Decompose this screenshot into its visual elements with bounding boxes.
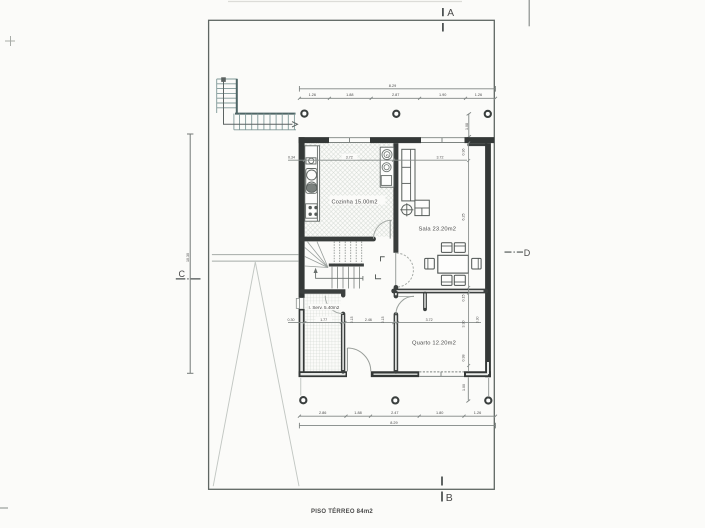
svg-text:1.08: 1.08 (465, 123, 469, 130)
svg-text:3.72: 3.72 (426, 318, 433, 322)
svg-text:1.00: 1.00 (462, 384, 466, 391)
svg-text:1.80: 1.80 (436, 411, 443, 415)
svg-text:1.88: 1.88 (354, 411, 361, 415)
svg-text:1.90: 1.90 (439, 93, 446, 97)
svg-text:2.47: 2.47 (391, 411, 398, 415)
svg-text:0.34: 0.34 (288, 156, 295, 160)
svg-text:3.72: 3.72 (346, 156, 353, 160)
svg-text:D: D (524, 248, 531, 258)
svg-text:Sala 23.20m2: Sala 23.20m2 (419, 227, 457, 233)
svg-text:8.29: 8.29 (389, 84, 396, 88)
svg-text:2.87: 2.87 (392, 93, 399, 97)
svg-text:0.15: 0.15 (350, 316, 354, 323)
svg-text:0.15: 0.15 (381, 316, 385, 323)
svg-text:3.30: 3.30 (462, 321, 466, 328)
svg-text:C: C (179, 269, 186, 279)
svg-text:1.26: 1.26 (474, 411, 481, 415)
svg-text:1.77: 1.77 (320, 318, 327, 322)
svg-text:I. Serv. 5.40m2: I. Serv. 5.40m2 (309, 305, 340, 310)
svg-text:2.46: 2.46 (365, 318, 372, 322)
svg-text:0.38: 0.38 (462, 355, 466, 362)
svg-text:0.15: 0.15 (462, 295, 466, 302)
svg-text:6.25: 6.25 (461, 214, 465, 221)
svg-text:Quarto 12.20m2: Quarto 12.20m2 (412, 340, 456, 346)
svg-text:A: A (447, 8, 454, 19)
svg-text:0.15: 0.15 (386, 154, 390, 161)
svg-text:0.30: 0.30 (288, 318, 295, 322)
svg-text:0.36: 0.36 (461, 149, 465, 156)
svg-text:1.26: 1.26 (309, 93, 316, 97)
svg-text:0.30: 0.30 (475, 316, 479, 323)
svg-text:PISO TÉRREO 84m2: PISO TÉRREO 84m2 (311, 507, 373, 515)
svg-text:10.30: 10.30 (186, 253, 190, 262)
svg-text:1.26: 1.26 (475, 93, 482, 97)
svg-text:8.29: 8.29 (390, 421, 397, 425)
svg-text:2.86: 2.86 (319, 411, 326, 415)
svg-text:B: B (446, 492, 453, 504)
svg-text:3.72: 3.72 (437, 156, 444, 160)
svg-text:Cozinha 15.00m2: Cozinha 15.00m2 (332, 199, 378, 205)
svg-text:1.88: 1.88 (346, 93, 353, 97)
